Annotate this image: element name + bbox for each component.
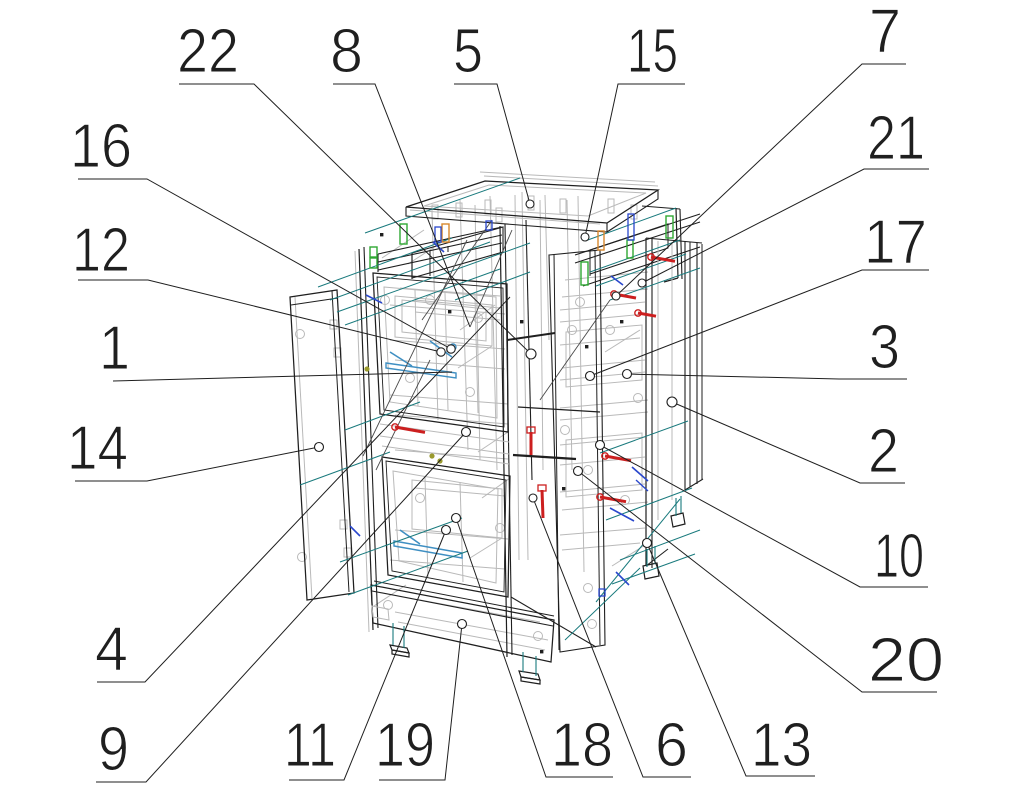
svg-text:17: 17 [864, 208, 927, 277]
svg-text:1: 1 [99, 314, 130, 383]
svg-text:6: 6 [655, 711, 688, 780]
svg-text:8: 8 [330, 17, 363, 86]
svg-text:11: 11 [284, 711, 336, 780]
svg-text:16: 16 [70, 112, 132, 181]
svg-text:18: 18 [551, 711, 613, 780]
svg-text:15: 15 [627, 17, 678, 86]
svg-text:4: 4 [95, 615, 128, 684]
svg-text:2: 2 [868, 417, 899, 486]
svg-text:19: 19 [375, 711, 435, 780]
svg-text:3: 3 [869, 313, 900, 382]
svg-text:5: 5 [453, 17, 483, 86]
svg-text:12: 12 [72, 216, 130, 285]
svg-text:21: 21 [867, 104, 925, 173]
svg-text:14: 14 [67, 414, 128, 483]
svg-text:13: 13 [751, 711, 812, 780]
svg-text:22: 22 [177, 17, 239, 86]
svg-text:7: 7 [869, 0, 901, 66]
svg-text:10: 10 [874, 522, 924, 591]
svg-text:20: 20 [868, 626, 944, 695]
svg-text:9: 9 [98, 715, 129, 784]
